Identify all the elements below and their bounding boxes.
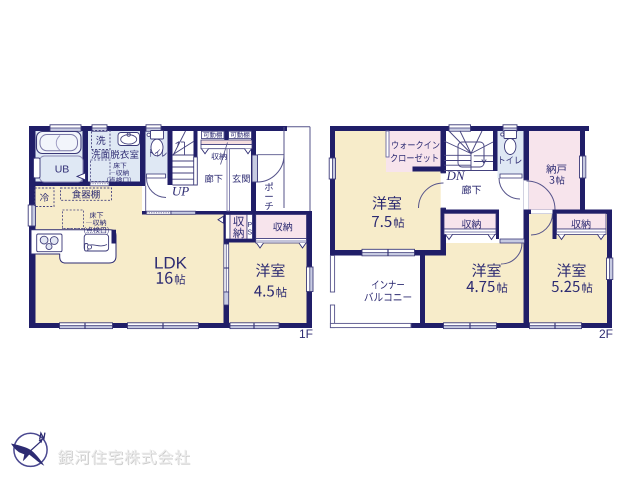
svg-text:1F: 1F — [299, 327, 313, 341]
svg-text:S: S — [247, 230, 252, 237]
svg-text:2F: 2F — [599, 327, 613, 341]
svg-text:P: P — [247, 222, 252, 229]
svg-text:UP: UP — [172, 184, 189, 199]
svg-text:LDK: LDK — [154, 254, 188, 273]
svg-text:UB: UB — [55, 164, 70, 176]
svg-text:DN: DN — [445, 168, 465, 183]
